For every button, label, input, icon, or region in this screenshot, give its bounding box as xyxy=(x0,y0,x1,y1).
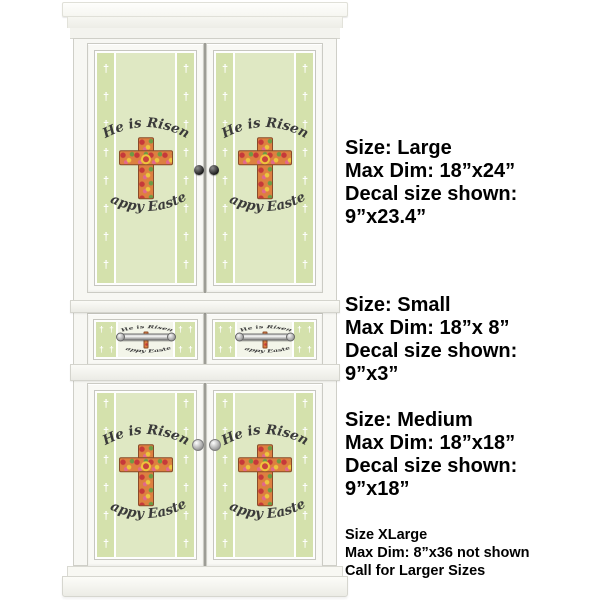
easter-decal-large: † † † † † † † † † † † † † † † † † † † † … xyxy=(216,53,313,283)
max-dim: Max Dim: 18”x 8” xyxy=(345,317,517,340)
decal-size-label: Decal size shown: xyxy=(345,183,517,206)
cabinet-rail xyxy=(70,364,340,381)
easter-decal-medium: † † † † † † † † † † † † † † † † † † † † … xyxy=(216,393,313,557)
product-image: † † † † † † † † † † † † † † † † † † † † … xyxy=(0,0,600,600)
easter-decal-medium: † † † † † † † † † † † † † † † † † † † † … xyxy=(97,393,194,557)
door-gap-line xyxy=(204,383,206,567)
cross-pattern-stripe: † † † † † † † † xyxy=(215,322,235,357)
door-panel: † † † † † † † † † † † † † † † † † † † † … xyxy=(94,50,197,286)
max-dim: Max Dim: 18”x18” xyxy=(345,432,517,455)
size-info-medium: Size: Medium Max Dim: 18”x18” Decal size… xyxy=(345,409,517,501)
drawer-right: † † † † † † † † He is Risen xyxy=(206,313,323,366)
cabinet-rail xyxy=(70,300,340,313)
flower-icon xyxy=(260,461,270,471)
floral-cross-icon xyxy=(238,137,292,199)
arc-text-happy-easter: Happy Easter xyxy=(217,195,313,224)
decal-size-label: Decal size shown: xyxy=(345,340,517,363)
decal-size-value: 9”x23.4” xyxy=(345,206,517,229)
decal-size-label: Decal size shown: xyxy=(345,455,517,478)
cross-pattern-stripe: † † † † † † † † xyxy=(294,322,314,357)
size-title: Size XLarge xyxy=(345,526,530,544)
door-panel: † † † † † † † † † † † † † † † † † † † † … xyxy=(213,390,316,560)
door-panel: † † † † † † † † † † † † † † † † † † † † … xyxy=(94,390,197,560)
lower-right-door: † † † † † † † † † † † † † † † † † † † † … xyxy=(206,383,323,567)
easter-decal-artwork: He is Risen Happy Easter xyxy=(216,112,313,224)
drawer-handle xyxy=(119,334,173,341)
cabinet-crown-top xyxy=(62,2,348,17)
arc-text-happy-easter: Happy Easter xyxy=(118,347,176,356)
size-title: Size: Large xyxy=(345,137,517,160)
floral-cross-icon xyxy=(119,137,173,199)
floral-cross-icon xyxy=(119,444,173,506)
size-title: Size: Small xyxy=(345,294,517,317)
door-knob xyxy=(194,165,204,175)
size-info-large: Size: Large Max Dim: 18”x24” Decal size … xyxy=(345,137,517,229)
decal-size-value: 9”x18” xyxy=(345,478,517,501)
size-title: Size: Medium xyxy=(345,409,517,432)
armoire-cabinet: † † † † † † † † † † † † † † † † † † † † … xyxy=(62,0,348,598)
arc-text-happy-easter: Happy Easter xyxy=(237,347,295,356)
cabinet-base xyxy=(62,576,348,597)
handle-endcap xyxy=(167,333,176,342)
upper-right-door: † † † † † † † † † † † † † † † † † † † † … xyxy=(206,43,323,293)
easter-decal-artwork: He is Risen Happy Easter xyxy=(97,419,194,531)
size-info-xlarge: Size XLarge Max Dim: 8”x36 not shown Cal… xyxy=(345,526,530,580)
cross-pattern-stripe: † † † † † † † † xyxy=(96,322,116,357)
arc-text-happy-easter: Happy Easter xyxy=(98,502,194,531)
size-info-small: Size: Small Max Dim: 18”x 8” Decal size … xyxy=(345,294,517,386)
door-panel: † † † † † † † † † † † † † † † † † † † † … xyxy=(213,50,316,286)
door-knob xyxy=(192,439,204,451)
arc-text-happy-easter: Happy Easter xyxy=(98,195,194,224)
easter-decal-artwork: He is Risen Happy Easter xyxy=(97,112,194,224)
flower-icon xyxy=(141,461,151,471)
floral-cross-icon xyxy=(238,444,292,506)
drawer-handle xyxy=(238,334,292,341)
handle-endcap xyxy=(286,333,295,342)
max-dim: Max Dim: 8”x36 not shown xyxy=(345,544,530,562)
door-knob xyxy=(209,165,219,175)
decal-size-value: 9”x3” xyxy=(345,363,517,386)
door-knob xyxy=(209,439,221,451)
handle-endcap xyxy=(235,333,244,342)
drawer-gap-line xyxy=(204,313,206,366)
flower-icon xyxy=(141,154,151,164)
easter-decal-large: † † † † † † † † † † † † † † † † † † † † … xyxy=(97,53,194,283)
door-gap-line xyxy=(204,43,206,293)
arc-text-happy-easter: Happy Easter xyxy=(217,502,313,531)
max-dim: Max Dim: 18”x24” xyxy=(345,160,517,183)
call-note: Call for Larger Sizes xyxy=(345,562,530,580)
upper-left-door: † † † † † † † † † † † † † † † † † † † † … xyxy=(87,43,204,293)
flower-icon xyxy=(260,154,270,164)
cross-pattern-stripe: † † † † † † † † xyxy=(175,322,195,357)
lower-left-door: † † † † † † † † † † † † † † † † † † † † … xyxy=(87,383,204,567)
easter-decal-artwork: He is Risen Happy Easter xyxy=(216,419,313,531)
handle-endcap xyxy=(116,333,125,342)
cabinet-crown-molding xyxy=(67,17,343,28)
drawer-left: † † † † † † † † He is Risen xyxy=(87,313,204,366)
